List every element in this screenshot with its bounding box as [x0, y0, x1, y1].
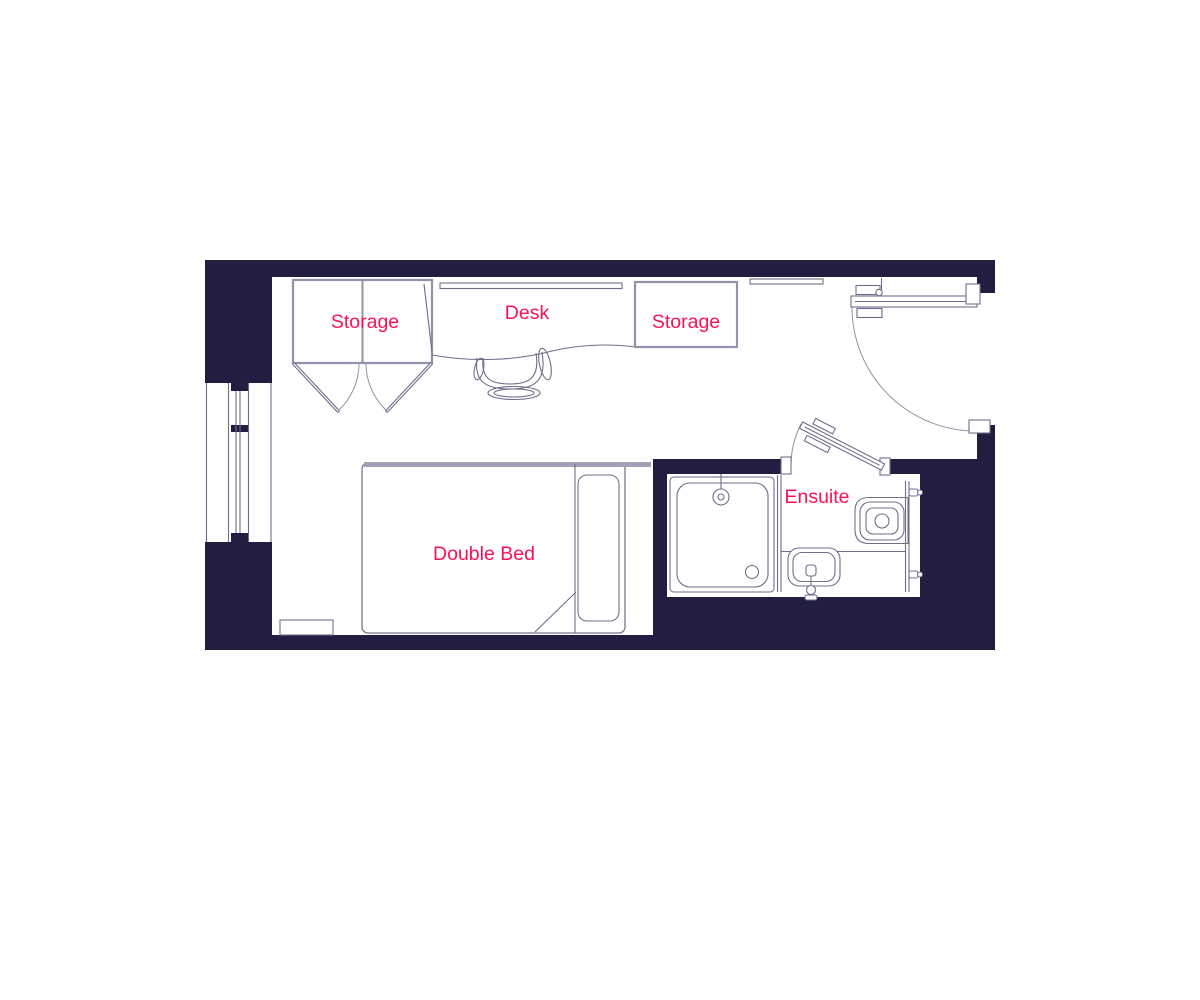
wardrobe-door-arc-left [338, 364, 359, 412]
studio-floorplan: Storage Desk Storage Double Bed Ensuite [0, 0, 1200, 1000]
towel-rail-bracket-top [918, 490, 923, 495]
wall-ensuite-north-left [653, 459, 790, 474]
desk-label: Desk [505, 302, 550, 324]
entry-door-swing-arc [852, 307, 976, 431]
ensuite-door-swing-arc [791, 424, 801, 467]
wall-top [205, 260, 977, 277]
wall-left-upper [205, 260, 272, 383]
desk-chair [472, 347, 553, 399]
wardrobe-storage-left [293, 280, 432, 411]
entry-door-hinge [876, 289, 882, 295]
sink-drain [875, 514, 889, 528]
desk-front-edge [432, 345, 636, 359]
desk [424, 279, 823, 360]
shower [670, 474, 781, 592]
toilet-base [805, 595, 817, 600]
toilet-flush [807, 586, 816, 595]
ensuite-door-jamb-left [781, 457, 791, 474]
towel-rail-bracket-bottom [918, 572, 923, 577]
window-mullion-top [231, 383, 249, 391]
entry-door-jamb-top [966, 284, 980, 304]
desk-shelf [440, 283, 622, 289]
wardrobe-door-leaf-right-core [387, 364, 431, 411]
window-mullion-bottom [231, 533, 249, 542]
double-bed-label: Double Bed [433, 543, 535, 565]
wall-left-lower [205, 542, 272, 650]
wall-right [977, 425, 995, 650]
entry-door-handle [857, 309, 882, 318]
radiator [280, 620, 333, 635]
wall-ensuite-east [920, 474, 977, 597]
wall-shelf [750, 279, 823, 284]
wall-ensuite-west [653, 459, 667, 650]
wardrobe-door-arc-right [366, 364, 387, 412]
chair-base-inner [494, 389, 534, 397]
sink [855, 498, 908, 544]
wall-ensuite-north-right [880, 459, 977, 474]
ensuite-label: Ensuite [784, 486, 849, 508]
towel-rail-bracket-bottom [909, 571, 918, 578]
shower-head [713, 489, 729, 505]
towel-rail-bracket-top [909, 489, 918, 496]
storage-left-label: Storage [331, 311, 399, 333]
window [207, 383, 272, 542]
floorplan-page: Storage Desk Storage Double Bed Ensuite [0, 0, 1200, 1000]
storage-right-label: Storage [652, 311, 720, 333]
wardrobe-door-leaf-left-core [294, 364, 338, 411]
toilet [781, 548, 906, 600]
toilet-cistern-valve [806, 565, 816, 576]
entry-door [851, 278, 990, 433]
entry-door-jamb-bottom [969, 420, 990, 433]
wall-ensuite-slab [653, 597, 995, 650]
chair-back-inner [483, 353, 537, 384]
ensuite-door-leaf [795, 414, 888, 478]
